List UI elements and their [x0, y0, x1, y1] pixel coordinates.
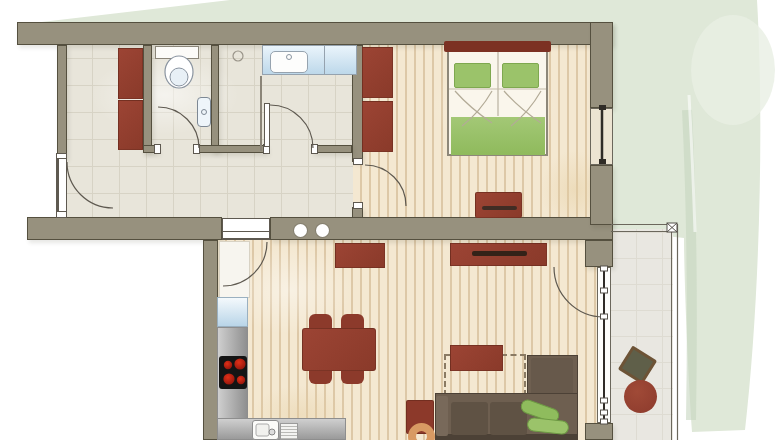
toilet-cistern-shelf — [155, 46, 199, 59]
living-door-leaf — [222, 218, 270, 240]
coffee-table — [450, 345, 503, 371]
wc-bath-wall — [211, 45, 219, 152]
bed-headboard — [444, 41, 551, 52]
bed-pillow-left — [454, 63, 491, 88]
wc-door-jamb — [193, 144, 200, 154]
floor-plan — [0, 0, 780, 440]
bed-bench-slot — [482, 206, 517, 210]
bedroom-wardrobe-lower — [362, 101, 393, 152]
sideboard — [335, 243, 385, 268]
bed-bench — [475, 192, 522, 218]
bedroom-door-jamb — [353, 202, 363, 209]
hall-wardrobe-upper — [118, 48, 143, 99]
wall-column-circle — [316, 224, 329, 237]
bathroom-door-jamb — [311, 144, 318, 154]
bedroom-window — [590, 108, 613, 165]
wall-column-circle — [294, 224, 307, 237]
wc-door-jamb — [154, 144, 161, 154]
sofa-seat-cushion — [451, 402, 488, 435]
bathroom-door-leaf — [264, 103, 270, 147]
garden-light-patch — [691, 15, 775, 125]
bedroom-door-jamb — [353, 158, 363, 165]
garden-shade-streak — [687, 110, 692, 420]
left-exterior-wall — [57, 45, 67, 158]
living-door-leaf-line — [223, 231, 269, 232]
middle-wall-left — [27, 217, 222, 240]
wc-bath-front-wall — [197, 145, 267, 153]
bedroom-right-wall-upper — [590, 22, 613, 108]
dining-table — [302, 328, 376, 371]
vanity-sink-basin — [270, 51, 308, 73]
dish-rack — [280, 423, 298, 440]
living-right-wall-bottom — [585, 423, 613, 440]
living-left-wall — [203, 240, 218, 440]
entry-door-leaf — [56, 158, 67, 213]
bed-blanket — [451, 117, 545, 155]
hall-wardrobe-lower — [118, 100, 143, 150]
tv — [472, 251, 527, 256]
fridge — [217, 297, 248, 327]
entry-door-jamb — [56, 211, 67, 218]
cooktop — [219, 356, 247, 389]
bedroom-wardrobe-upper — [362, 47, 393, 98]
vanity-divider — [324, 45, 325, 75]
kitchen-sink — [252, 420, 279, 440]
kitchen-tall-cabinet — [219, 241, 250, 298]
wc-hand-basin — [197, 97, 211, 127]
living-right-wall-top — [585, 240, 613, 267]
balcony-chair — [624, 380, 657, 413]
garden-white-streak — [689, 95, 695, 232]
bath-front-wall-right — [312, 145, 352, 153]
hall-wc-wall — [143, 45, 152, 152]
living-glass-front — [597, 267, 611, 423]
bedroom-right-wall-lower — [590, 165, 613, 225]
tv-lowboard — [450, 243, 547, 266]
bed-pillow-right — [502, 63, 539, 88]
sofa-armrest — [436, 396, 448, 436]
